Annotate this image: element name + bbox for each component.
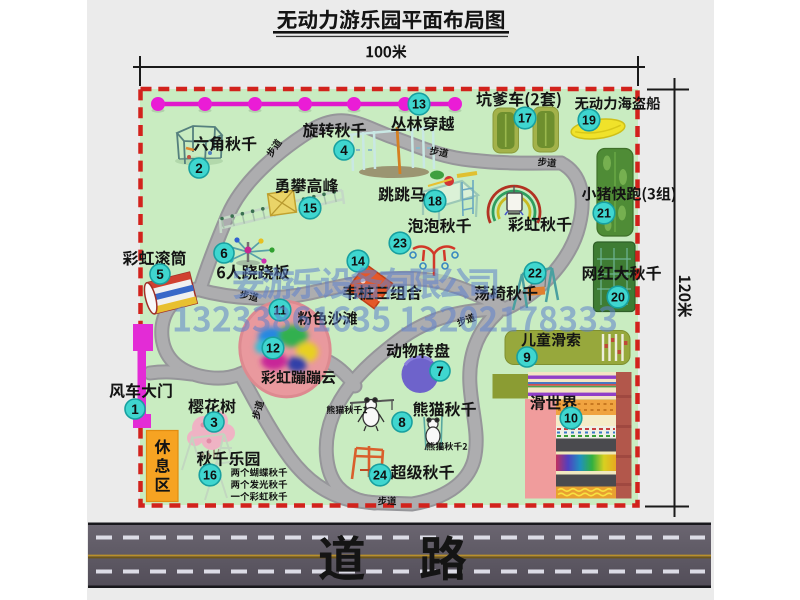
svg-text:24: 24 [373, 469, 387, 483]
svg-text:6: 6 [220, 246, 228, 261]
svg-text:8: 8 [398, 415, 406, 430]
svg-text:12: 12 [266, 342, 280, 356]
svg-text:14: 14 [351, 255, 365, 269]
svg-text:16: 16 [203, 469, 217, 483]
svg-text:1: 1 [131, 402, 139, 417]
svg-text:15: 15 [303, 202, 317, 216]
svg-text:4: 4 [340, 143, 348, 158]
svg-text:10: 10 [564, 412, 578, 426]
svg-text:19: 19 [582, 114, 596, 128]
svg-text:3: 3 [210, 415, 218, 430]
svg-text:13: 13 [412, 98, 426, 112]
svg-text:2: 2 [195, 161, 203, 176]
svg-text:7: 7 [436, 364, 444, 379]
svg-text:17: 17 [518, 112, 532, 126]
svg-text:9: 9 [523, 350, 531, 365]
svg-text:23: 23 [393, 237, 407, 251]
svg-text:21: 21 [597, 207, 611, 221]
svg-text:20: 20 [611, 291, 625, 305]
svg-text:22: 22 [528, 267, 542, 281]
svg-text:5: 5 [156, 267, 164, 282]
svg-text:18: 18 [428, 195, 442, 209]
